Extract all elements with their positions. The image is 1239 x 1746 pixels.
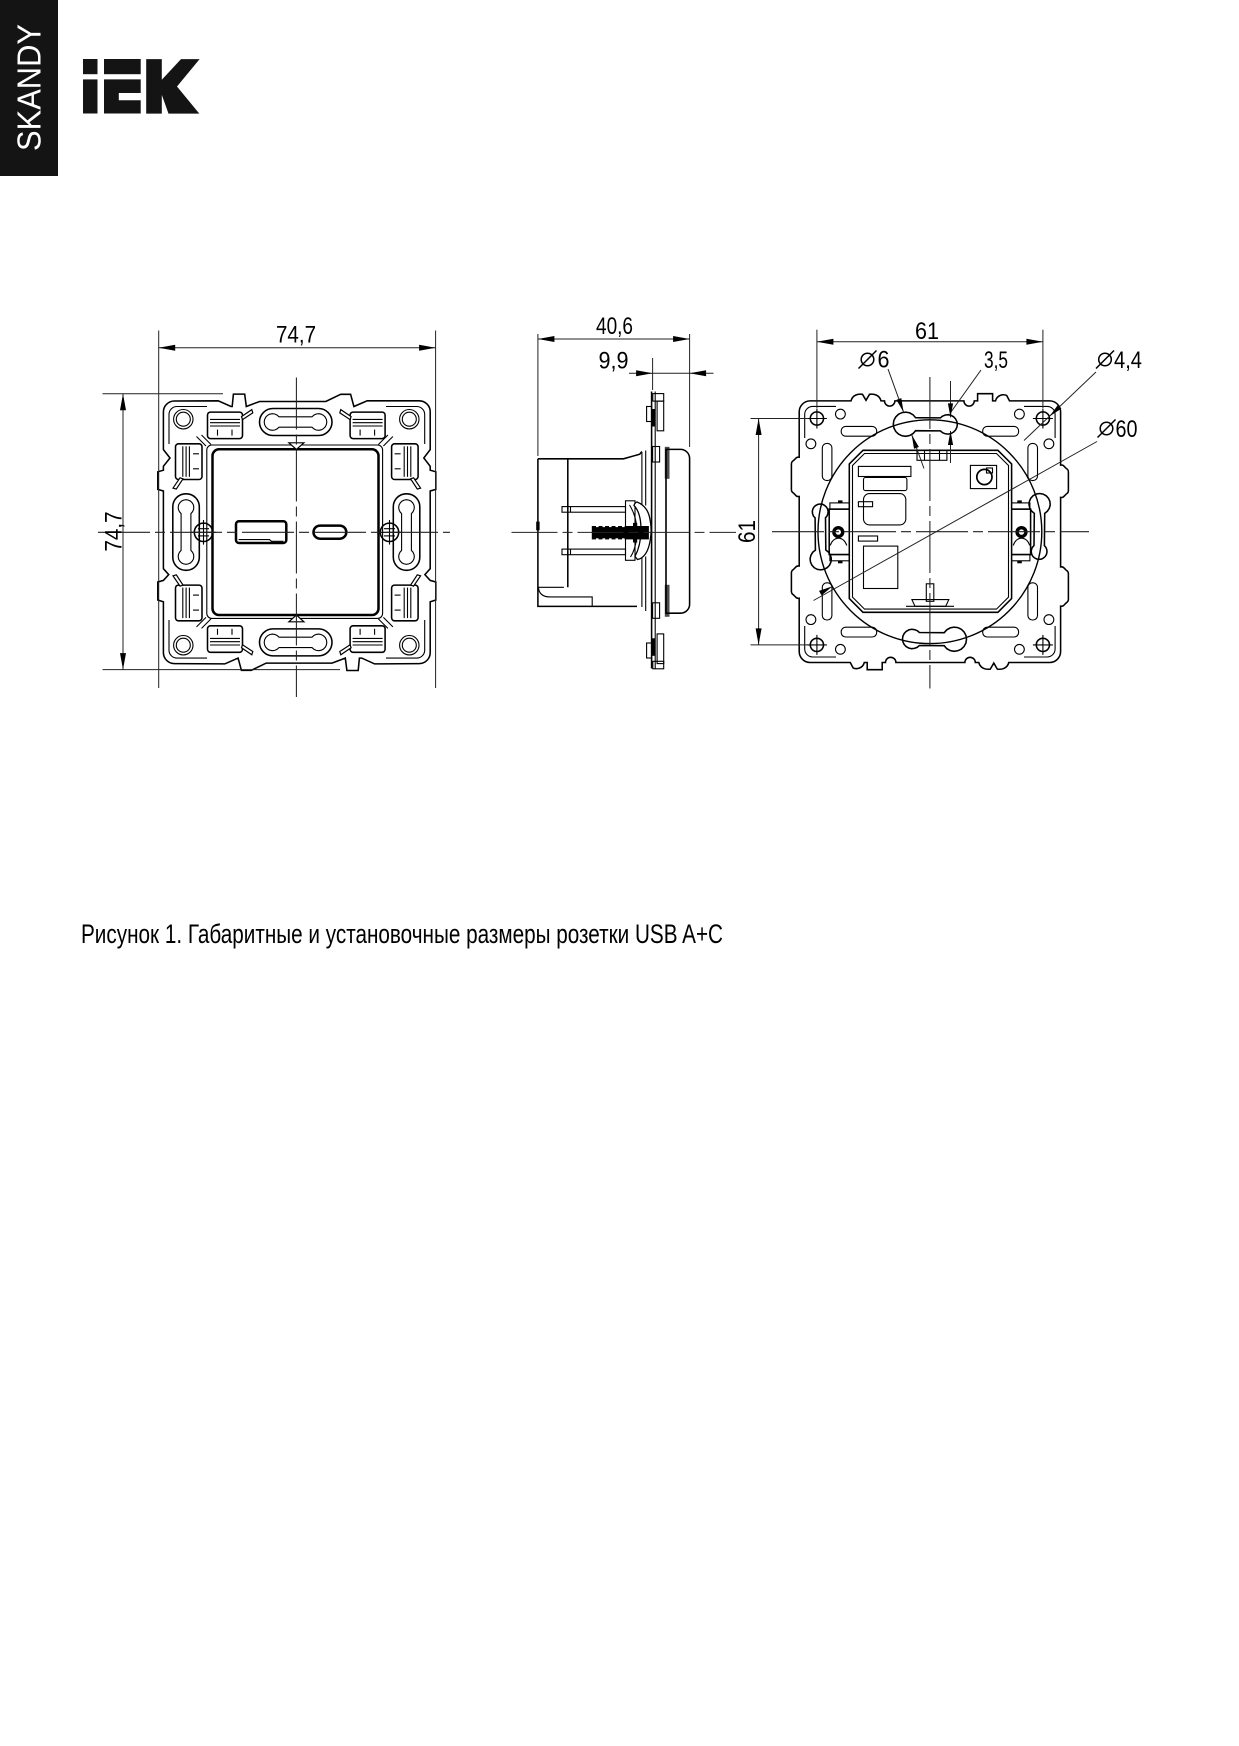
svg-text:61: 61 xyxy=(915,318,939,345)
svg-text:Рисунок 1. Габаритные и устано: Рисунок 1. Габаритные и установочные раз… xyxy=(81,919,723,949)
svg-text:40,6: 40,6 xyxy=(596,313,633,340)
svg-text:9,9: 9,9 xyxy=(599,348,629,375)
svg-text:60: 60 xyxy=(1116,416,1138,443)
svg-text:SKANDY: SKANDY xyxy=(11,24,48,151)
svg-text:74,7: 74,7 xyxy=(276,322,316,349)
svg-text:3,5: 3,5 xyxy=(984,347,1008,374)
svg-text:4,4: 4,4 xyxy=(1114,347,1142,374)
svg-text:74,7: 74,7 xyxy=(101,512,128,552)
svg-text:61: 61 xyxy=(734,520,761,543)
